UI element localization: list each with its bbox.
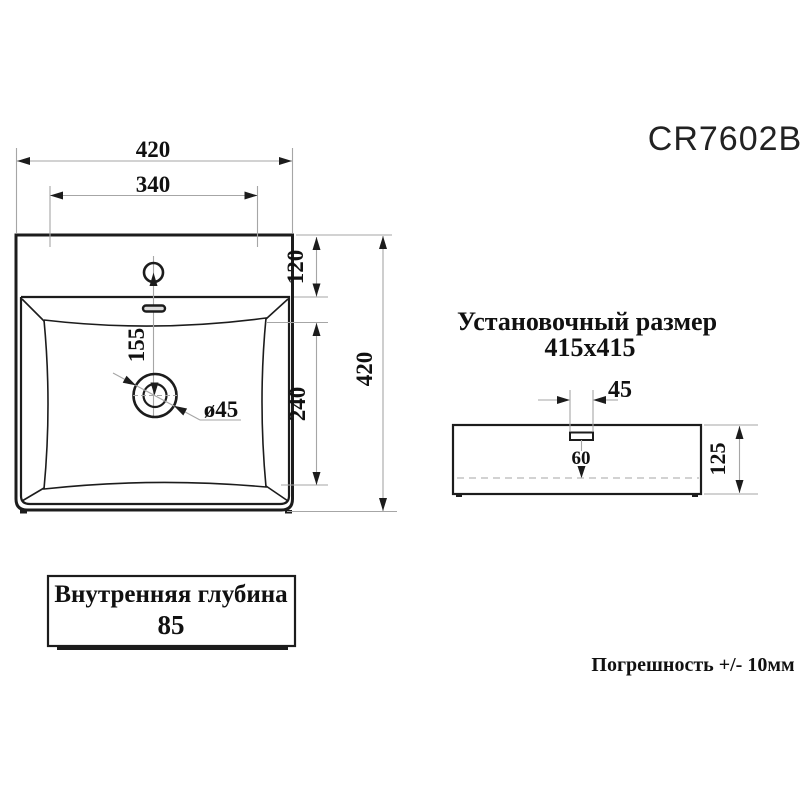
arrow-up-icon xyxy=(150,273,158,287)
depth-box-value: 85 xyxy=(158,610,185,640)
arrow-up-icon xyxy=(736,426,744,439)
tolerance-note: Погрешность +/- 10мм xyxy=(591,654,794,676)
dim-hole-width: 45 xyxy=(608,377,632,403)
install-note-line1: Установочный размер xyxy=(457,307,717,336)
arrow-up-icon xyxy=(379,236,387,249)
arrow-left-icon xyxy=(50,192,63,200)
side-foot-right xyxy=(692,494,698,497)
dim-drain-diameter: ø45 xyxy=(204,397,239,422)
side-view: 45 60 125 xyxy=(453,377,758,497)
arrow-down-icon xyxy=(736,480,744,493)
basin-corner-lines xyxy=(22,299,288,501)
arrow-down-icon xyxy=(313,284,321,297)
depth-box: Внутренняя глубина 85 xyxy=(48,576,295,649)
overflow-slot xyxy=(143,306,165,312)
sink-foot-left xyxy=(20,510,27,514)
dim-side-height: 125 xyxy=(705,443,730,476)
dim-overall-width: 420 xyxy=(136,137,171,162)
side-foot-left xyxy=(456,494,462,497)
arrow-left-icon xyxy=(593,396,606,404)
dim-hole-depth: 60 xyxy=(572,448,591,469)
dim-rim-depth: 120 xyxy=(283,250,308,285)
arrow-down-icon xyxy=(313,472,321,485)
arrow-left-icon xyxy=(17,157,30,165)
depth-box-label: Внутренняя глубина xyxy=(54,581,288,608)
dim-faucet-to-drain: 155 xyxy=(124,328,149,363)
technical-drawing-page: 420 340 120 240 420 155 xyxy=(0,0,800,800)
dim-basin-length: 240 xyxy=(285,387,310,422)
arrow-diagonal-icon xyxy=(174,406,187,416)
side-view-hole xyxy=(570,433,593,441)
arrow-up-icon xyxy=(313,237,321,250)
arrow-down-icon xyxy=(379,498,387,511)
install-note: Установочный размер 415x415 xyxy=(457,307,717,362)
install-note-line2: 415x415 xyxy=(545,333,636,362)
arrow-right-icon xyxy=(557,396,570,404)
arrow-right-icon xyxy=(245,192,258,200)
arrow-up-icon xyxy=(313,323,321,336)
sink-inner-rim xyxy=(21,297,289,504)
sink-dimension-drawing: 420 340 120 240 420 155 xyxy=(0,0,800,800)
dim-inner-width: 340 xyxy=(136,172,171,197)
dim-overall-height: 420 xyxy=(352,352,377,387)
arrow-right-icon xyxy=(279,157,292,165)
model-title: CR7602B xyxy=(648,120,800,158)
arrow-diagonal-icon xyxy=(123,376,136,386)
